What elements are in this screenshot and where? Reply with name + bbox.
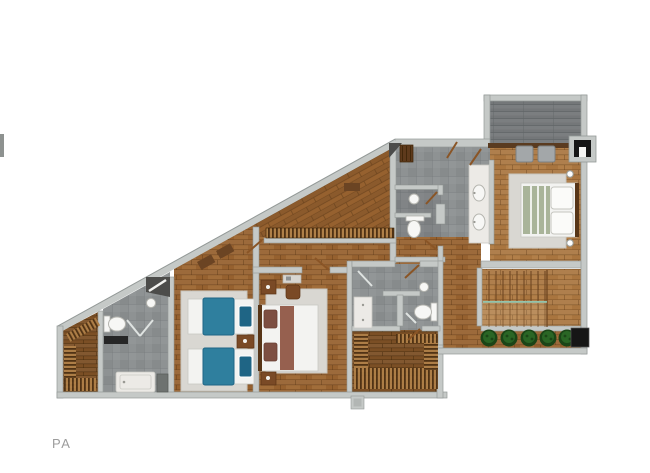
stair-glass-rail xyxy=(483,301,547,303)
double-runner xyxy=(280,306,294,370)
left-edge-element xyxy=(0,134,4,157)
bathroom1-basin xyxy=(147,299,156,308)
bath-cabinet xyxy=(157,374,168,392)
plant xyxy=(481,330,498,347)
wc-toilet xyxy=(408,221,421,238)
master-pillow xyxy=(551,187,573,209)
ottoman xyxy=(516,146,533,162)
master-pillow xyxy=(551,212,573,234)
ottoman xyxy=(538,146,555,162)
master-vanity xyxy=(469,165,489,243)
balcony-black-box xyxy=(571,328,589,347)
twin-bed-2-pillow xyxy=(239,356,252,377)
twin-bed-1-duvet xyxy=(203,298,234,335)
wall-light xyxy=(567,171,573,177)
twin-bed-1-pillow xyxy=(239,306,252,327)
terrace-threshold xyxy=(488,143,581,148)
wc-basin xyxy=(409,194,419,204)
corridor-right-floor xyxy=(443,237,481,348)
bathroom2-toilet xyxy=(415,305,432,319)
master-headboard xyxy=(575,183,579,237)
desk xyxy=(283,275,301,283)
plant xyxy=(540,330,557,347)
floor-plan-drawing xyxy=(0,0,650,473)
double-pillow xyxy=(264,310,277,328)
floor-plan-page: PA xyxy=(0,0,650,473)
floor-label: PA xyxy=(52,436,71,451)
twin-bed-2-duvet xyxy=(203,348,234,385)
double-pillow xyxy=(264,343,277,361)
plant xyxy=(501,330,518,347)
wall-light xyxy=(567,240,573,246)
bathroom2-basin xyxy=(420,283,429,292)
bathroom2-vanity xyxy=(354,297,372,328)
bathroom1-toilet xyxy=(109,317,126,331)
double-headboard xyxy=(258,305,262,371)
door-mat xyxy=(344,183,360,191)
slatted-bench xyxy=(266,228,394,238)
desk-chair xyxy=(286,285,300,299)
bathroom1-counter xyxy=(104,336,128,344)
exterior-step xyxy=(351,396,364,409)
double-bedroom xyxy=(258,275,327,385)
chimney xyxy=(569,136,596,162)
plant xyxy=(521,330,538,347)
